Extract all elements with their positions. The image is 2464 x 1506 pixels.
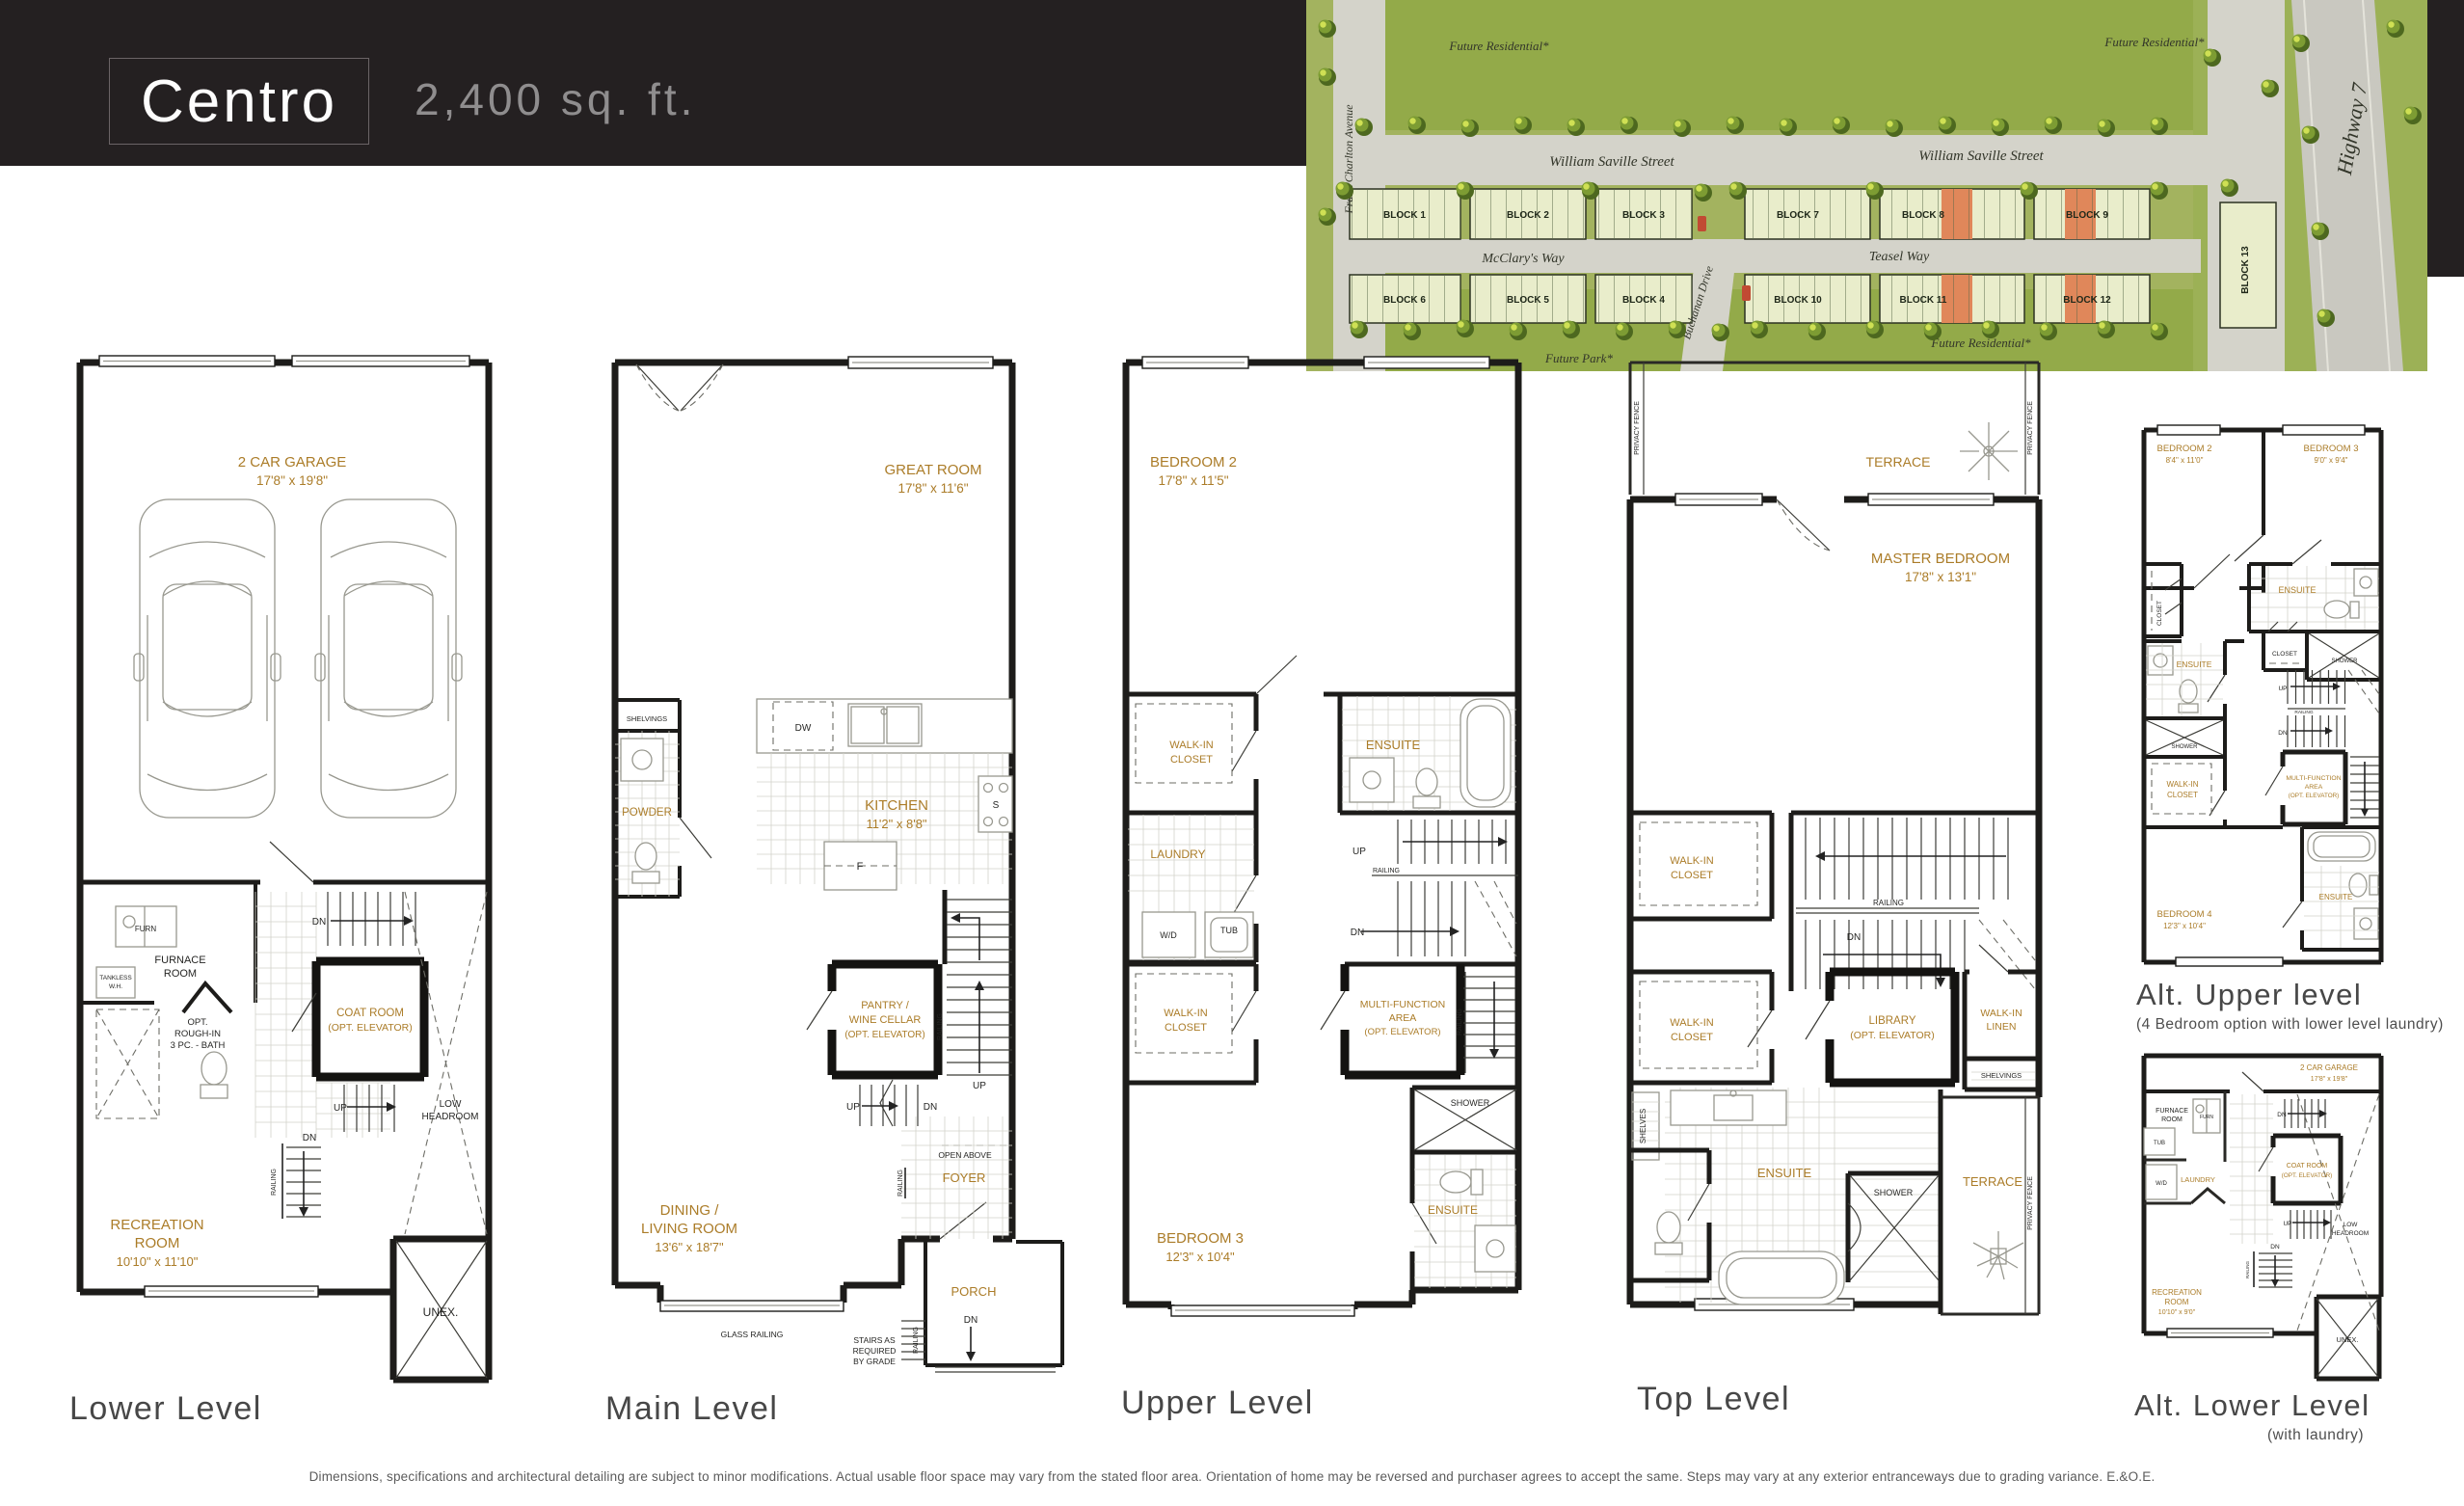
area-label: Future Residential* (1930, 336, 2031, 350)
dining-label: DINING / (660, 1202, 720, 1219)
ensuite-2 (2144, 641, 2244, 718)
furnace-room-label: FURNACE (154, 955, 205, 966)
linen-label: LINEN (1987, 1021, 2017, 1033)
terrace-top (1630, 363, 2039, 495)
multi-label: MULTI-FUNCTION (2286, 775, 2341, 782)
bedroom2-dim: 8'4" x 11'0" (2166, 456, 2204, 465)
caption-lower-level: Lower Level (69, 1390, 262, 1428)
shower-1 (2307, 632, 2381, 680)
stairs-upper (1345, 820, 1518, 964)
block-label: BLOCK 7 (1777, 210, 1819, 221)
ensuite-label: ENSUITE (2278, 585, 2316, 595)
unex-label: UNEX. (423, 1305, 459, 1319)
multi-label: (OPT. ELEVATOR) (2289, 793, 2339, 799)
floor-plan-main: GREAT ROOM 17'8" x 11'6" SHELVINGS POWDE… (607, 355, 1080, 1377)
foyer-label: FOYER (943, 1170, 986, 1185)
ensuite-top (1630, 1088, 1941, 1314)
grade-stairs-label: REQUIRED (853, 1346, 897, 1356)
library (1806, 972, 1955, 1083)
block-label: BLOCK 5 (1507, 295, 1549, 306)
terrace-label: TERRACE (1963, 1174, 2022, 1189)
bedroom3-dim: 9'0" x 9'4" (2315, 456, 2348, 465)
porch (901, 1242, 1062, 1372)
dn-label: DN (2277, 1112, 2287, 1118)
low-headroom-label: LOW (440, 1099, 462, 1110)
model-title-box: Centro (109, 58, 369, 145)
shower-ensuite2 (1412, 1088, 1518, 1290)
caption-alt-lower: Alt. Lower Level (2134, 1388, 2370, 1423)
railing-label: RAILING (2294, 710, 2313, 715)
ensuite-label: ENSUITE (2177, 659, 2212, 669)
wic-label: CLOSET (1165, 1022, 1207, 1034)
powder-label: POWDER (622, 807, 672, 819)
garage-label: 2 CAR GARAGE (2300, 1063, 2358, 1072)
floor-plan-lower: 2 CAR GARAGE 17'8" x 19'8" FURN FURNACE … (72, 355, 496, 1386)
garage-label: 2 CAR GARAGE (238, 454, 347, 471)
block-label: BLOCK 12 (2063, 295, 2111, 306)
ensuite-label: ENSUITE (2319, 893, 2353, 901)
dn-label: DN (2270, 1244, 2280, 1251)
open-above-label: OPEN ABOVE (938, 1150, 992, 1160)
ensuite-label: ENSUITE (1757, 1166, 1812, 1180)
dn-label: DN (964, 1315, 978, 1326)
caption-top-level: Top Level (1637, 1381, 1790, 1418)
railing-label: RAILING (1457, 1008, 1463, 1035)
railing-label: RAILING (897, 1170, 904, 1197)
furn-label: FURN (2200, 1115, 2213, 1120)
block-label: BLOCK 11 (1900, 295, 1947, 306)
up-label: UP (334, 1103, 347, 1114)
low-headroom-label: HEADROOM (422, 1112, 479, 1122)
rec-room-label: ROOM (135, 1235, 180, 1251)
railing-label: RAILING (2245, 1261, 2250, 1279)
ensuite-label: ENSUITE (1428, 1203, 1478, 1217)
coat-room-label: (OPT. ELEVATOR) (328, 1022, 413, 1034)
library-label: LIBRARY (1868, 1015, 1915, 1027)
street-label: Teasel Way (1869, 250, 1930, 264)
caption-main-level: Main Level (605, 1390, 778, 1428)
railing-label: RAILING (1873, 899, 1904, 907)
brochure-page: Centro 2,400 sq. ft. (0, 0, 2464, 1506)
shower-label: SHOWER (2172, 744, 2199, 750)
wic-label: WALK-IN (1164, 1008, 1207, 1019)
room-labels: BEDROOM 2 17'8" x 11'5" WALK-IN CLOSET E… (1150, 454, 1490, 1264)
model-sqft: 2,400 sq. ft. (415, 73, 696, 125)
block-label: BLOCK 8 (1902, 210, 1944, 221)
kitchen-dim: 11'2" x 8'8" (866, 817, 926, 831)
wic-label: WALK-IN (1670, 855, 1713, 867)
laundry-label: LAUNDRY (1150, 847, 1205, 861)
garage-dim: 17'8" x 19'8" (256, 473, 328, 488)
rec-room-dim: 10'10" x 9'0" (2158, 1309, 2196, 1316)
rec-room-label: RECREATION (110, 1217, 203, 1233)
shelvings-powder (615, 700, 711, 897)
pantry-label: (OPT. ELEVATOR) (844, 1030, 924, 1040)
privacy-fence-label: PRIVACY FENCE (1634, 401, 1641, 455)
garage-dim: 17'8" x 19'8" (2311, 1076, 2348, 1083)
dn-label: DN (1847, 932, 1861, 943)
laundry (1126, 813, 1256, 962)
great-room-dim: 17'8" x 11'6" (897, 481, 968, 496)
terrace-bottom (1941, 1097, 2039, 1314)
stairs-down-flight (282, 1143, 321, 1219)
bedroom2-label: BEDROOM 2 (1150, 454, 1237, 471)
dining-label: LIVING ROOM (641, 1221, 737, 1237)
shower-label: SHOWER (1451, 1098, 1490, 1108)
model-title: Centro (141, 67, 337, 136)
shelvings-label: SHELVINGS (627, 714, 667, 723)
floor-plan-alt-lower: 2 CAR GARAGE 17'8" x 19'8" FURNACE ROOM … (2138, 1051, 2456, 1388)
street-label: McClary's Way (1481, 252, 1565, 266)
stairs-upper-flight (328, 892, 415, 946)
wic-label: WALK-IN (1169, 740, 1213, 751)
opt-bath-label: ROUGH-IN (174, 1029, 221, 1039)
terrace-label: TERRACE (1866, 454, 1931, 470)
shower-label: SHOWER (2332, 659, 2359, 664)
dn-label: DN (312, 917, 326, 928)
walls (615, 357, 1012, 1311)
stove-label: S (993, 800, 1000, 811)
multi-label: AREA (2305, 784, 2323, 791)
area-label: Future Residential* (1448, 39, 1549, 53)
caption-alt-upper: Alt. Upper level (2136, 978, 2362, 1012)
master-dim: 17'8" x 13'1" (1905, 570, 1976, 584)
privacy-fence-label: PRIVACY FENCE (2027, 1176, 2034, 1230)
tub-label: TUB (1220, 926, 1238, 935)
bedroom2-label: BEDROOM 2 (2156, 444, 2211, 454)
block-label: BLOCK 10 (1774, 295, 1822, 306)
header-band-corner (2427, 0, 2464, 277)
tub-label: TUB (2154, 1141, 2165, 1146)
floor-plan-top: TERRACE PRIVACY FENCE PRIVACY FENCE MAST… (1622, 355, 2047, 1348)
wd-label: W/D (2156, 1181, 2167, 1187)
site-plan-map: BLOCK 1 BLOCK 2 BLOCK 3 BLOCK 7 BLOCK 8 … (1306, 0, 2427, 371)
furnace-label: ROOM (2161, 1116, 2183, 1123)
block-label: BLOCK 4 (1622, 295, 1665, 306)
laundry-label: LAUNDRY (2181, 1175, 2215, 1184)
bedroom4-label: BEDROOM 4 (2156, 909, 2211, 920)
bedroom4-ensuite3 (2144, 827, 2381, 950)
wic-label: WALK-IN (2166, 780, 2198, 789)
furn-label: FURN (135, 925, 156, 933)
up-label: UP (2278, 686, 2287, 692)
wic-label: WALK-IN (1670, 1017, 1713, 1029)
shelvings-label: SHELVINGS (1981, 1071, 2022, 1080)
dn-label: DN (303, 1133, 316, 1143)
dining-dim: 13'6" x 18'7" (655, 1240, 724, 1254)
walls (2144, 425, 2381, 966)
multi-label: AREA (1389, 1012, 1417, 1024)
great-room-label: GREAT ROOM (884, 462, 981, 478)
garage-cars (134, 499, 462, 818)
block-label: BLOCK 6 (1383, 295, 1426, 306)
railing-label: RAILING (271, 1169, 278, 1196)
furnace-room-label: ROOM (164, 968, 197, 980)
unex-label: UNEX. (2337, 1335, 2359, 1344)
multi-label: (OPT. ELEVATOR) (1364, 1027, 1440, 1037)
multi-label: MULTI-FUNCTION (1360, 999, 1445, 1010)
wic-label: CLOSET (2167, 791, 2198, 799)
railing-label: RAILING (937, 1013, 944, 1040)
street-label: William Saville Street (1549, 154, 1674, 170)
kitchen-label: KITCHEN (865, 797, 928, 814)
coat-room-label: (OPT. ELEVATOR) (2282, 1172, 2332, 1179)
closet-label: CLOSET (2156, 601, 2163, 626)
stairs-up-flight (344, 1085, 396, 1132)
dn-label: DN (2278, 730, 2288, 737)
floor-plan-upper: BEDROOM 2 17'8" x 11'5" WALK-IN CLOSET E… (1118, 355, 1533, 1348)
opt-bath-label: OPT. (187, 1017, 207, 1028)
glass-railing-label: GLASS RAILING (721, 1330, 784, 1339)
linen-label: WALK-IN (1980, 1008, 2022, 1019)
block-label: BLOCK 9 (2066, 210, 2108, 221)
coat-room (292, 961, 424, 1077)
up-label: UP (846, 1102, 860, 1113)
street-label: William Saville Street (1918, 148, 2044, 164)
pantry-label: PANTRY / (861, 1000, 909, 1011)
wd-label: W/D (1160, 930, 1177, 940)
furnace-fixtures (96, 906, 228, 1118)
railing-label: RAILING (1373, 868, 1400, 874)
wic-label: CLOSET (1671, 1032, 1713, 1043)
dn-label: DN (1351, 928, 1364, 938)
rec-room-label: RECREATION (2152, 1288, 2202, 1297)
caption-upper-level: Upper Level (1121, 1385, 1314, 1422)
ensuite-label: ENSUITE (1366, 738, 1421, 752)
rec-room-label: ROOM (2165, 1298, 2189, 1306)
up-label: UP (1353, 847, 1366, 857)
area-label: Future Park* (1544, 351, 1613, 365)
privacy-fence-label: PRIVACY FENCE (2027, 401, 2034, 455)
dn-label: DN (924, 1102, 937, 1113)
grade-stairs-label: STAIRS AS (853, 1335, 896, 1345)
area-label: Future Residential* (2103, 35, 2205, 49)
wic-label: CLOSET (1170, 754, 1213, 766)
tankless-label: W.H. (109, 983, 122, 990)
subcaption-alt-upper: (4 Bedroom option with lower level laund… (2136, 1016, 2444, 1034)
bedroom3-label: BEDROOM 3 (1157, 1230, 1244, 1247)
grade-stairs-label: BY GRADE (853, 1357, 896, 1366)
bedroom3-dim: 12'3" x 10'4" (1165, 1250, 1235, 1264)
ensuite-1 (1340, 694, 1518, 813)
coat-room-label: COAT ROOM (2287, 1163, 2328, 1170)
master-label: MASTER BEDROOM (1871, 551, 2010, 567)
shower-2 (2144, 718, 2225, 757)
pantry-label: WINE CELLAR (849, 1014, 922, 1026)
block-label: BLOCK 2 (1507, 210, 1549, 221)
up-label: UP (2283, 1221, 2291, 1227)
low-headroom-label: HEADROOM (2332, 1230, 2369, 1237)
bedroom3-label: BEDROOM 3 (2303, 444, 2358, 454)
porch-label: PORCH (951, 1284, 997, 1299)
rec-room-dim: 10'10" x 11'10" (117, 1254, 199, 1269)
disclaimer-text: Dimensions, specifications and architect… (0, 1469, 2464, 1484)
furnace-label: FURNACE (2156, 1108, 2188, 1115)
block-label: BLOCK 13 (2240, 246, 2251, 294)
subcaption-alt-lower: (with laundry) (2267, 1427, 2364, 1444)
up-label: UP (973, 1081, 986, 1091)
floor-plan-alt-upper: BEDROOM 2 8'4" x 11'0" BEDROOM 3 9'0" x … (2138, 424, 2456, 1003)
railing-label: RAILING (913, 1327, 920, 1354)
shower-label: SHOWER (1874, 1188, 1914, 1197)
stair-shaft (1463, 972, 1515, 1073)
wic-label: CLOSET (1671, 870, 1713, 881)
closet-label: CLOSET (2272, 651, 2297, 658)
bedroom2-dim: 17'8" x 11'5" (1158, 473, 1228, 488)
opt-bath-label: 3 PC. - BATH (171, 1040, 226, 1051)
block-label: BLOCK 3 (1622, 210, 1665, 221)
closet-2 (2263, 622, 2307, 670)
coat-room-label: COAT ROOM (336, 1008, 404, 1019)
tankless-label: TANKLESS (99, 975, 132, 982)
block-label: BLOCK 1 (1383, 210, 1426, 221)
dw-label: DW (795, 723, 812, 734)
shelves-label: SHELVES (1639, 1109, 1647, 1143)
library-label: (OPT. ELEVATOR) (1850, 1030, 1935, 1041)
low-headroom-label: LOW (2343, 1222, 2359, 1228)
bedroom4-dim: 12'3" x 10'4" (2163, 922, 2206, 930)
fridge-label: F (857, 861, 864, 873)
